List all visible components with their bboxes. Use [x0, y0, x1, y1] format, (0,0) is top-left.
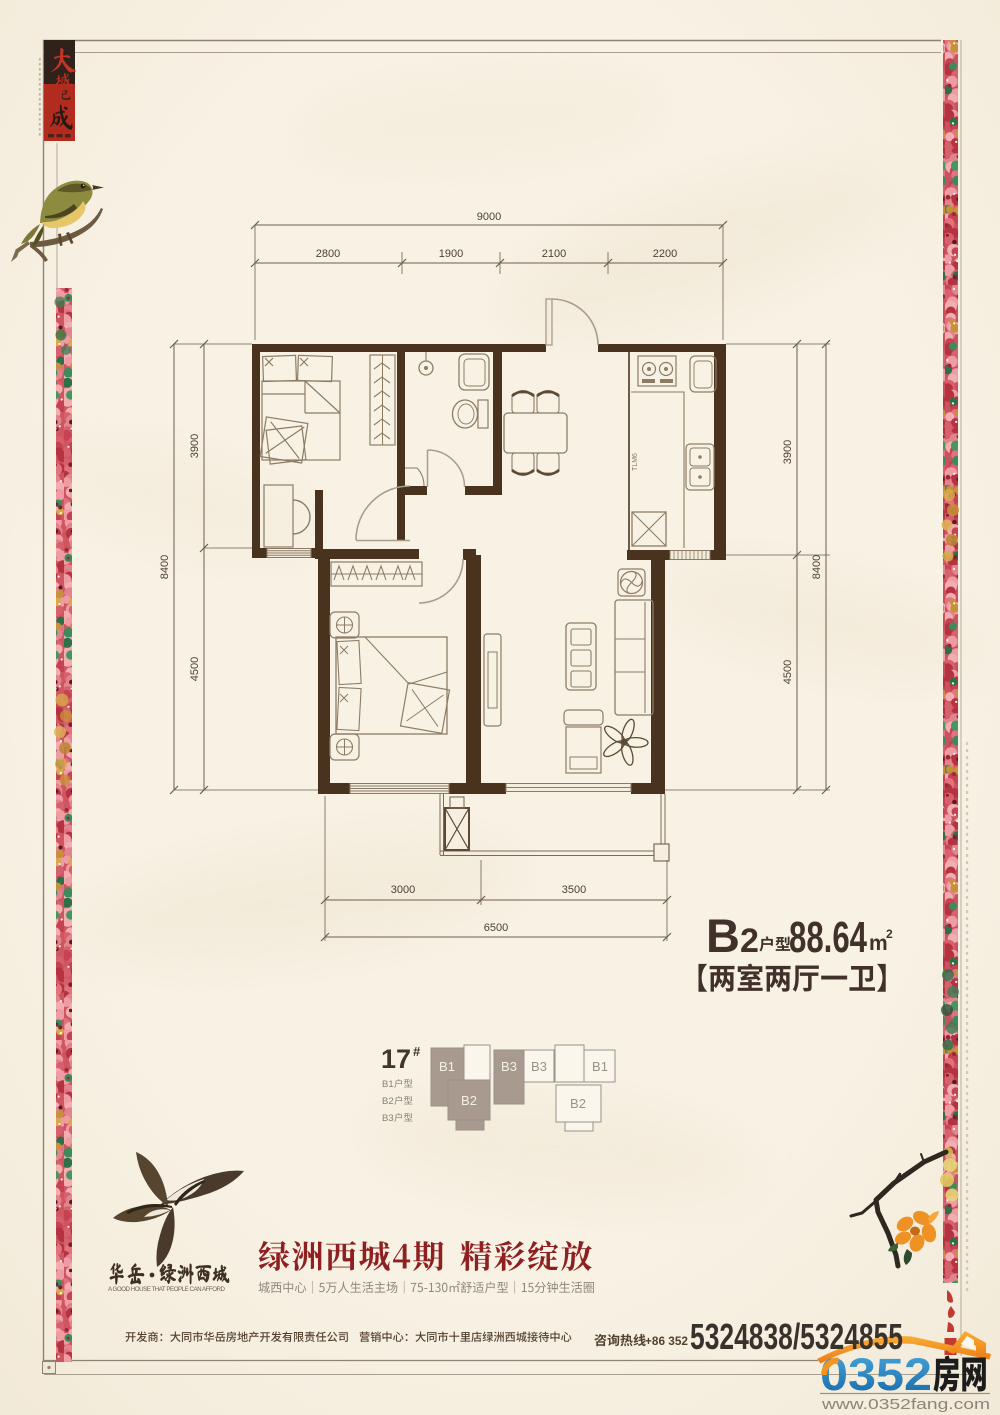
svg-text:#: # [413, 1044, 421, 1059]
svg-text:B2: B2 [382, 1096, 394, 1107]
svg-text:2: 2 [740, 922, 759, 960]
svg-text:1900: 1900 [439, 248, 463, 260]
svg-text:8400: 8400 [159, 555, 171, 579]
svg-text:B1: B1 [439, 1059, 455, 1074]
svg-text:2100: 2100 [542, 248, 566, 260]
svg-text:88.64: 88.64 [789, 913, 867, 962]
svg-text:3000: 3000 [391, 884, 415, 896]
svg-text:9000: 9000 [477, 211, 501, 223]
svg-text:www.0352fang.com: www.0352fang.com [821, 1396, 990, 1413]
svg-text:B2: B2 [570, 1096, 586, 1111]
svg-text:2800: 2800 [316, 248, 340, 260]
svg-text:17: 17 [381, 1044, 411, 1074]
svg-text:B2: B2 [461, 1093, 477, 1108]
svg-text:B3: B3 [501, 1059, 517, 1074]
svg-text:6500: 6500 [484, 922, 508, 934]
svg-text:2: 2 [886, 927, 893, 941]
svg-text:B1: B1 [592, 1059, 608, 1074]
svg-text:B: B [706, 909, 740, 962]
svg-text:A GOOD HOUSE THAT PEOPLE CAN A: A GOOD HOUSE THAT PEOPLE CAN AFFORD [108, 1286, 226, 1293]
svg-text:0352: 0352 [820, 1349, 932, 1400]
svg-text:4500: 4500 [782, 660, 794, 684]
svg-text:TLM6: TLM6 [632, 453, 639, 471]
svg-text:3900: 3900 [189, 434, 201, 458]
svg-text:8400: 8400 [811, 555, 823, 579]
svg-text:B3: B3 [531, 1059, 547, 1074]
svg-text:3900: 3900 [782, 440, 794, 464]
svg-text:B1: B1 [382, 1079, 394, 1090]
svg-text:2200: 2200 [653, 248, 677, 260]
svg-text:4500: 4500 [189, 657, 201, 681]
svg-text:+86 352: +86 352 [645, 1334, 688, 1348]
svg-text:3500: 3500 [562, 884, 586, 896]
svg-text:m: m [869, 932, 888, 955]
svg-text:B3: B3 [382, 1113, 394, 1124]
